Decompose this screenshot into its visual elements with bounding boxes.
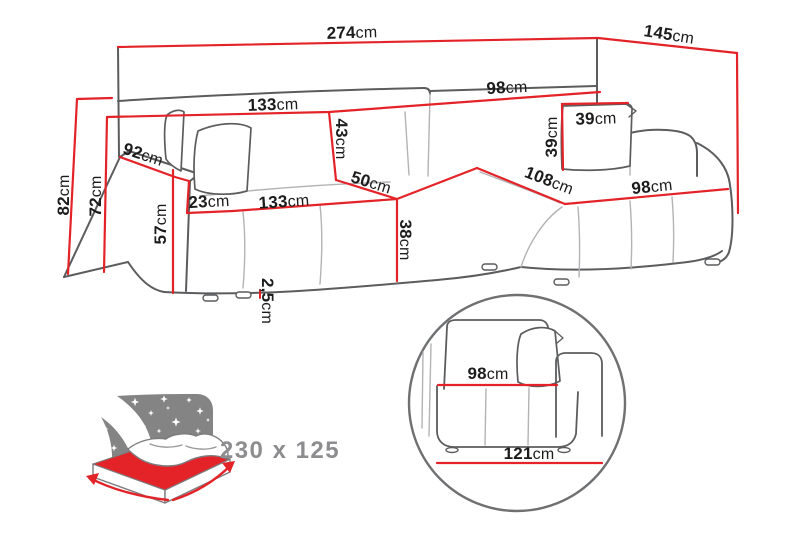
dim-backrest-height: 43cm bbox=[332, 118, 350, 159]
dim-line-pillow-width bbox=[562, 103, 628, 104]
dim-unit: cm bbox=[56, 174, 73, 196]
dim-value: 133 bbox=[258, 192, 288, 213]
dim-arm-height: 57cm bbox=[152, 203, 170, 244]
dim-unit: cm bbox=[332, 138, 349, 160]
dim-unit: cm bbox=[671, 28, 695, 48]
dim-value: 57 bbox=[151, 225, 170, 244]
dim-height-backrest: 72cm bbox=[87, 175, 105, 216]
dim-value: 98 bbox=[486, 78, 506, 98]
dim-pillow-width: 39cm bbox=[575, 109, 617, 128]
sofa-foot bbox=[482, 264, 497, 270]
dim-value: 72 bbox=[86, 197, 105, 216]
dim-value: 39 bbox=[575, 109, 595, 129]
dim-unit: cm bbox=[276, 96, 298, 114]
dim-detail-seat-width: 98cm bbox=[467, 365, 508, 383]
star-icon bbox=[125, 407, 129, 411]
dim-value: 98 bbox=[631, 177, 652, 198]
furniture-dimension-diagram: 274cm 145cm 98cm 133cm 43cm 39cm 39cm 92… bbox=[0, 0, 800, 533]
dim-back-width-right: 98cm bbox=[486, 78, 528, 98]
dim-seat-height: 38cm bbox=[396, 219, 414, 260]
dim-value: 274 bbox=[326, 23, 356, 43]
detail-zoom-circle bbox=[409, 295, 625, 511]
sofa-arm-corner bbox=[128, 262, 164, 292]
dim-value: 2,5 bbox=[258, 278, 277, 302]
sofa-foot bbox=[203, 295, 218, 301]
dim-unit: cm bbox=[88, 175, 105, 197]
dim-value: 23 bbox=[188, 192, 208, 212]
dim-value: 43 bbox=[332, 118, 351, 137]
dim-line-pillow-height bbox=[562, 104, 563, 170]
back-pillow-small bbox=[165, 110, 184, 171]
sofa-foot bbox=[236, 292, 251, 298]
sleeping-area-size: 230 x 125 bbox=[220, 439, 340, 463]
chaise-right-silhouette bbox=[697, 143, 733, 263]
chaise-bottom-edge bbox=[521, 251, 722, 270]
seat-seam bbox=[578, 207, 580, 277]
sofa-line-drawing bbox=[64, 38, 733, 301]
dim-back-width-left: 133cm bbox=[247, 95, 298, 115]
detail-circle-outline bbox=[409, 295, 625, 511]
detail-pillow bbox=[517, 328, 560, 387]
backrest-panel-edge bbox=[428, 94, 430, 176]
dim-height-total: 82cm bbox=[55, 174, 73, 215]
dim-value: 38 bbox=[396, 219, 415, 238]
dim-leg-height: 2,5cm bbox=[258, 278, 276, 324]
dim-value: 121 bbox=[504, 444, 533, 463]
sofa-bottom-edge bbox=[164, 267, 521, 293]
seat-seam bbox=[320, 205, 322, 284]
dim-unit: cm bbox=[650, 177, 673, 196]
dim-seat-width-left: 133cm bbox=[258, 191, 310, 212]
dim-line-right-extension bbox=[737, 53, 738, 213]
dim-unit: cm bbox=[544, 116, 561, 138]
dim-detail-total-width: 121cm bbox=[504, 445, 555, 463]
chaise-front-corner-seam bbox=[521, 207, 562, 267]
dim-unit: cm bbox=[207, 193, 230, 211]
dim-unit: cm bbox=[487, 366, 509, 383]
dim-unit: cm bbox=[595, 110, 617, 128]
seat-seam bbox=[672, 197, 674, 262]
sleeping-function-icon bbox=[86, 394, 235, 503]
sofa-back-left-edge bbox=[118, 47, 119, 157]
back-pillow-large bbox=[194, 124, 251, 194]
seat-seam bbox=[630, 201, 632, 269]
detail-foot bbox=[558, 448, 570, 453]
dim-arm-width: 23cm bbox=[188, 192, 230, 212]
dim-unit: cm bbox=[258, 302, 275, 324]
dim-unit: cm bbox=[355, 24, 377, 42]
dim-pillow-height: 39cm bbox=[543, 116, 561, 157]
sofa-foot bbox=[554, 279, 569, 285]
detail-foot bbox=[446, 448, 458, 453]
dim-unit: cm bbox=[153, 203, 170, 225]
dim-unit: cm bbox=[287, 192, 310, 210]
backrest-panel-edge bbox=[405, 112, 409, 175]
dim-value: 82 bbox=[54, 196, 73, 215]
dim-value: 133 bbox=[247, 95, 277, 115]
sofa-dimension-drawing bbox=[0, 0, 800, 533]
dim-unit: cm bbox=[533, 446, 555, 463]
sofa-foot bbox=[705, 259, 720, 265]
dim-unit: cm bbox=[396, 239, 413, 261]
dim-value: 98 bbox=[467, 364, 486, 383]
dim-unit: cm bbox=[505, 79, 528, 97]
chaise-arm-top bbox=[630, 130, 697, 176]
seat-seam bbox=[243, 212, 245, 288]
dim-value: 39 bbox=[542, 138, 561, 157]
dim-width-total: 274cm bbox=[326, 23, 377, 43]
sofa-side-bottom-edge bbox=[64, 262, 128, 277]
